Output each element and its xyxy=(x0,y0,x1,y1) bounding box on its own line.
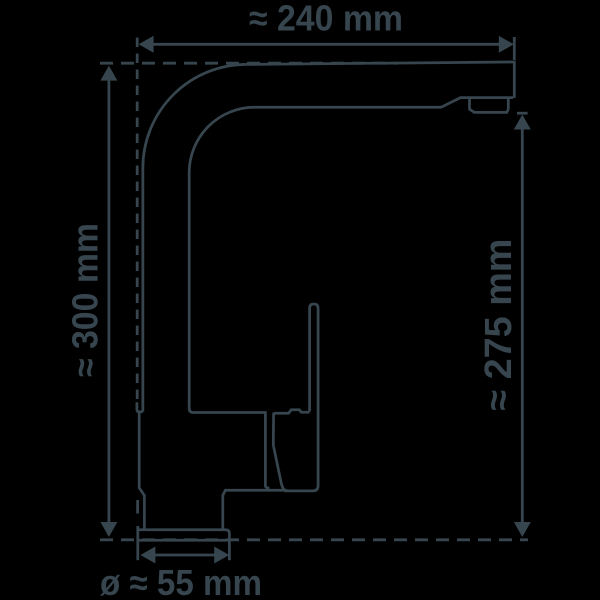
svg-text:≈ 275 mm: ≈ 275 mm xyxy=(478,239,520,411)
svg-text:ø ≈ 55 mm: ø ≈ 55 mm xyxy=(100,562,262,600)
svg-text:≈ 300 mm: ≈ 300 mm xyxy=(65,223,106,377)
svg-text:≈ 240 mm: ≈ 240 mm xyxy=(249,0,403,39)
